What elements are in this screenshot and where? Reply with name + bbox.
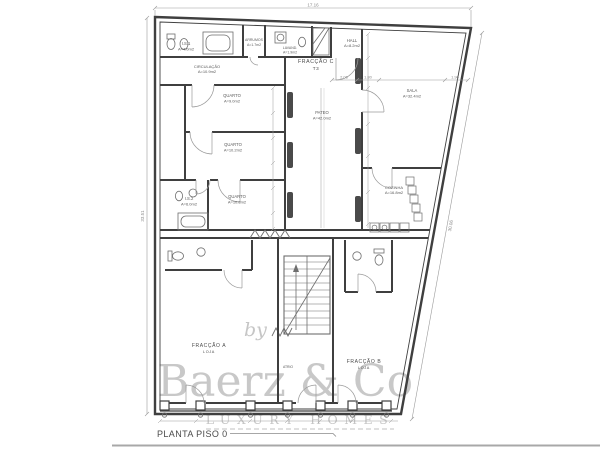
room-quarto3-label: QUARTO xyxy=(228,194,247,199)
title-block: PLANTA PISO 0 xyxy=(157,429,336,439)
fraction-a-label: FRACÇÃO A xyxy=(192,342,226,349)
room-is2-label: I.S.2 xyxy=(185,196,194,201)
room-lavandaria-label: LAVAND. xyxy=(283,46,297,50)
room-quarto3-area: A=10.8m2 xyxy=(228,200,247,205)
room-quarto1-area: A=9.0m2 xyxy=(224,99,241,104)
room-circulacao-area: A=10.9m2 xyxy=(198,69,217,74)
fraction-b-label: FRACÇÃO B xyxy=(347,358,382,365)
room-labels: I.S.1 A=4.0m2 ARRUMOS A=1.7m2 LAVAND. A=… xyxy=(178,38,422,370)
fraction-b-use: LOJA xyxy=(358,366,370,370)
watermark: by Baerz & Co LUXURY HOMES xyxy=(157,319,413,429)
dim-chain-3: 1.90 xyxy=(451,75,460,80)
fraction-a-use: LOJA xyxy=(203,350,215,354)
room-is2-area: A=6.0m2 xyxy=(181,202,198,207)
watermark-by: by xyxy=(244,319,267,341)
room-sala-label: SALA xyxy=(407,88,418,93)
shaft-hatch xyxy=(313,28,329,55)
fraction-c-label: FRACÇÃO C xyxy=(298,58,334,65)
room-arrumos-label: ARRUMOS xyxy=(245,38,264,42)
room-pateo-label: PATEO xyxy=(315,110,329,115)
dim-top-width: 17.16 xyxy=(307,3,319,8)
room-atrio-label: ATRIO xyxy=(283,365,293,369)
room-hall-area: A=8.2m2 xyxy=(344,43,361,48)
room-is1-area: A=4.0m2 xyxy=(178,47,195,52)
fraction-c-type: T3 xyxy=(313,66,320,71)
floor-plan-sheet: by Baerz & Co LUXURY HOMES xyxy=(0,0,600,450)
patio-windows xyxy=(287,58,361,228)
interior-walls-upper xyxy=(160,25,441,238)
room-lavandaria-area: A=1.9m2 xyxy=(283,51,297,55)
title-underline xyxy=(230,434,336,437)
room-is1-label: I.S.1 xyxy=(182,41,191,46)
room-arrumos-area: A=1.7m2 xyxy=(247,43,261,47)
dim-chain-2: 1.80 xyxy=(364,75,373,80)
room-quarto2-area: A=10.2m2 xyxy=(224,148,243,153)
room-quarto2-label: QUARTO xyxy=(224,142,243,147)
room-pateo-area: A=42.0m2 xyxy=(313,116,332,121)
room-cozinha-area: A=16.8m2 xyxy=(385,190,404,195)
dim-right-length: 30.06 xyxy=(447,219,454,231)
dim-left-height: 33.51 xyxy=(140,210,145,222)
room-quarto1-label: QUARTO xyxy=(223,93,242,98)
sheet-title: PLANTA PISO 0 xyxy=(157,429,228,439)
room-sala-area: A=32.4m2 xyxy=(403,94,422,99)
staircase xyxy=(284,256,330,334)
dim-chain-1: 2.06 xyxy=(340,75,349,80)
floor-plan-drawing: by Baerz & Co LUXURY HOMES xyxy=(0,0,600,450)
